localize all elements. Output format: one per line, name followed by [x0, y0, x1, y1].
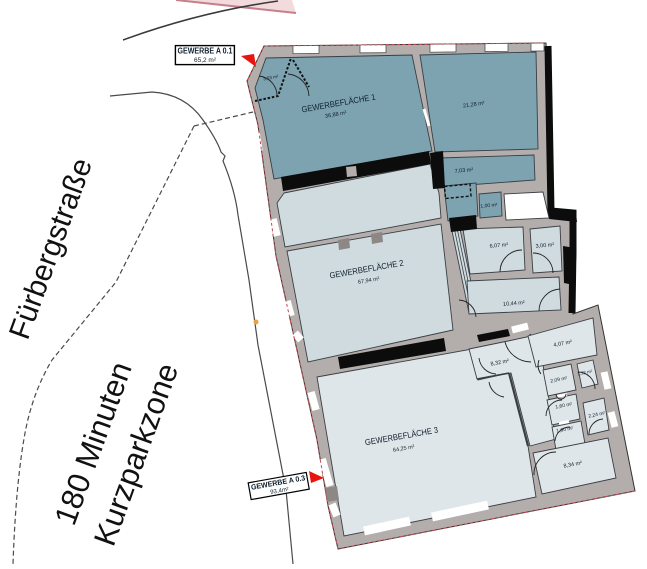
svg-text:GEWERBE A 0.1: GEWERBE A 0.1 — [178, 47, 233, 56]
svg-text:65,2 m²: 65,2 m² — [194, 57, 217, 64]
